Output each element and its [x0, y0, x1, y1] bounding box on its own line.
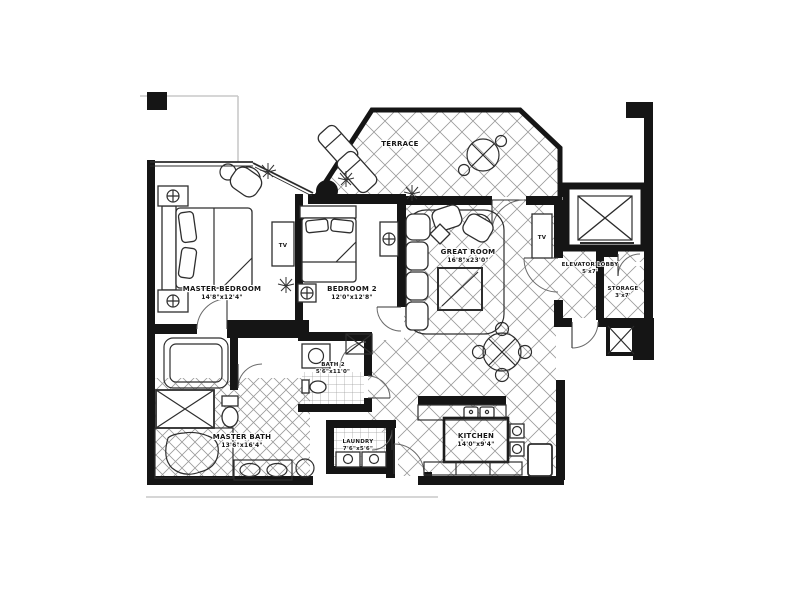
floor-plan-page: TERRACE TV MASTER BEDROOM 14'8"x12'4": [0, 0, 800, 600]
tv-label: TV: [538, 235, 547, 241]
wall: [418, 396, 506, 405]
walk-in-closet-inner: [170, 344, 222, 382]
room-dims-kitchen: 14'0"x9'4": [457, 441, 494, 448]
bedroom-2: BEDROOM 2 12'0"x12'8": [298, 206, 398, 302]
room-dims-storage: 3'x7': [615, 293, 631, 299]
lamp-icon: [167, 295, 179, 307]
wall: [554, 200, 563, 258]
wall: [424, 472, 432, 485]
wall: [554, 318, 572, 327]
wall: [633, 322, 654, 360]
pillow: [178, 247, 197, 279]
toilet-tank: [222, 396, 238, 406]
master-bedroom: TV MASTER BEDROOM 14'8"x12'4": [158, 161, 294, 312]
wall: [326, 420, 396, 428]
room-dims-elevator-lobby: 5'x7': [582, 269, 598, 275]
room-dims-laundry: 7'6"x5'6": [343, 446, 373, 452]
lamp-icon: [167, 190, 179, 202]
wall: [326, 420, 334, 474]
door-arc: [197, 299, 227, 329]
room-label-master-bedroom: MASTER BEDROOM: [183, 285, 262, 293]
room-label-storage: STORAGE: [608, 286, 639, 292]
wall: [147, 160, 155, 332]
wall: [230, 332, 238, 390]
room-dims-master-bath: 13'6"x16'4": [221, 442, 263, 449]
wall: [227, 320, 309, 338]
sofa-cushion: [406, 242, 428, 270]
room-label-elevator-lobby: ELEVATOR LOBBY: [562, 262, 620, 268]
wall: [556, 380, 565, 480]
sofa-cushion: [406, 272, 428, 300]
door-arc: [377, 307, 401, 331]
lamp-icon: [301, 287, 313, 299]
window: [253, 163, 313, 193]
lamp-icon: [383, 233, 395, 245]
pillow: [178, 211, 197, 243]
pillow: [330, 219, 353, 233]
room-label-kitchen: KITCHEN: [458, 432, 494, 440]
storage-tile-floor: [604, 266, 644, 318]
elevator-shaft: [566, 186, 644, 248]
kitchen-sink: [480, 407, 494, 418]
wall: [418, 476, 564, 485]
toilet-tank: [302, 380, 309, 393]
toilet: [222, 407, 238, 427]
room-dims-master-bedroom: 14'8"x12'4": [201, 294, 243, 301]
room-label-bedroom-2: BEDROOM 2: [327, 285, 377, 293]
room-label-bath-2: BATH 2: [321, 362, 345, 368]
sofa-cushion: [406, 302, 428, 330]
pillow: [305, 219, 328, 233]
floor-plan-svg: TERRACE TV MASTER BEDROOM 14'8"x12'4": [0, 0, 800, 600]
room-dims-bath-2: 5'6"x11'0": [316, 369, 350, 375]
refrigerator: [528, 444, 552, 476]
plant-icon: [278, 277, 294, 293]
toilet: [310, 381, 326, 393]
wall: [298, 332, 372, 341]
wall: [147, 324, 197, 334]
sofa-cushion: [406, 214, 430, 240]
headboard: [162, 206, 176, 290]
room-label-master-bath: MASTER BATH: [213, 433, 271, 441]
room-dims-bedroom-2: 12'0"x12'8": [331, 294, 373, 301]
headboard: [300, 206, 356, 218]
room-label-laundry: LAUNDRY: [343, 439, 375, 445]
wall: [147, 92, 167, 110]
room-label-terrace: TERRACE: [381, 140, 418, 148]
kitchen-sink: [464, 407, 478, 418]
room-dims-great-room: 16'8"x23'0": [447, 257, 489, 264]
door-arc: [572, 322, 598, 348]
wall: [298, 404, 372, 412]
room-label-great-room: GREAT ROOM: [441, 248, 496, 256]
wall: [147, 325, 155, 485]
wall: [596, 250, 604, 320]
column: [316, 180, 338, 202]
tv-label: TV: [279, 243, 288, 249]
